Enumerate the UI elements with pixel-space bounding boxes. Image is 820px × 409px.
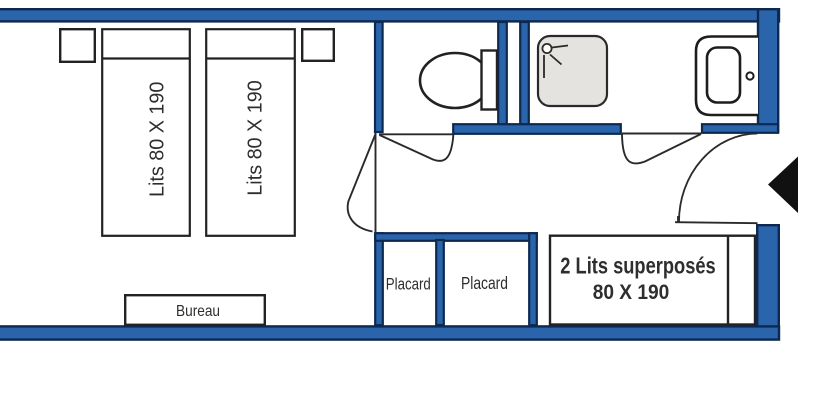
svg-text:Lits 80 X 190: Lits 80 X 190 — [244, 80, 266, 195]
svg-text:Placard: Placard — [386, 275, 431, 294]
svg-text:2 Lits superposés: 2 Lits superposés — [560, 253, 715, 279]
svg-text:80 X 190: 80 X 190 — [593, 280, 670, 304]
svg-text:Lits 80 X 190: Lits 80 X 190 — [146, 82, 168, 197]
svg-text:Bureau: Bureau — [176, 303, 220, 320]
svg-text:Placard: Placard — [461, 273, 508, 293]
